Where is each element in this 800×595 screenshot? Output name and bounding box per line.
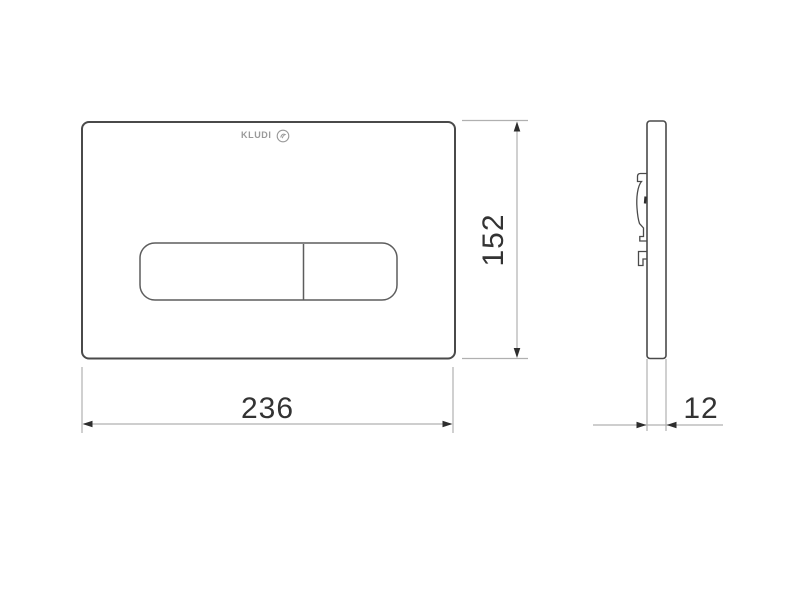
mounting-clip-upper <box>637 174 647 242</box>
mounting-clip-lower <box>639 252 648 266</box>
flush-button-outline <box>140 243 397 300</box>
side-view-plate-outline <box>647 121 666 359</box>
height-dimension-label: 152 <box>479 180 509 300</box>
front-view-plate-outline <box>82 122 455 359</box>
brand-logo: KLUDI <box>241 128 290 143</box>
kludi-circle-logo-icon <box>276 129 290 143</box>
width-dimension-label: 236 <box>82 394 453 424</box>
mounting-clip-detail-tick <box>645 197 646 204</box>
brand-logo-text: KLUDI <box>241 128 272 143</box>
flush-plate-drawing <box>0 0 800 595</box>
technical-drawing-canvas: KLUDI 236 152 12 <box>0 0 800 595</box>
depth-arrow-right-icon <box>637 422 647 429</box>
depth-dimension-label: 12 <box>666 394 736 424</box>
height-arrow-up-icon <box>514 122 521 132</box>
height-arrow-down-icon <box>514 348 521 358</box>
